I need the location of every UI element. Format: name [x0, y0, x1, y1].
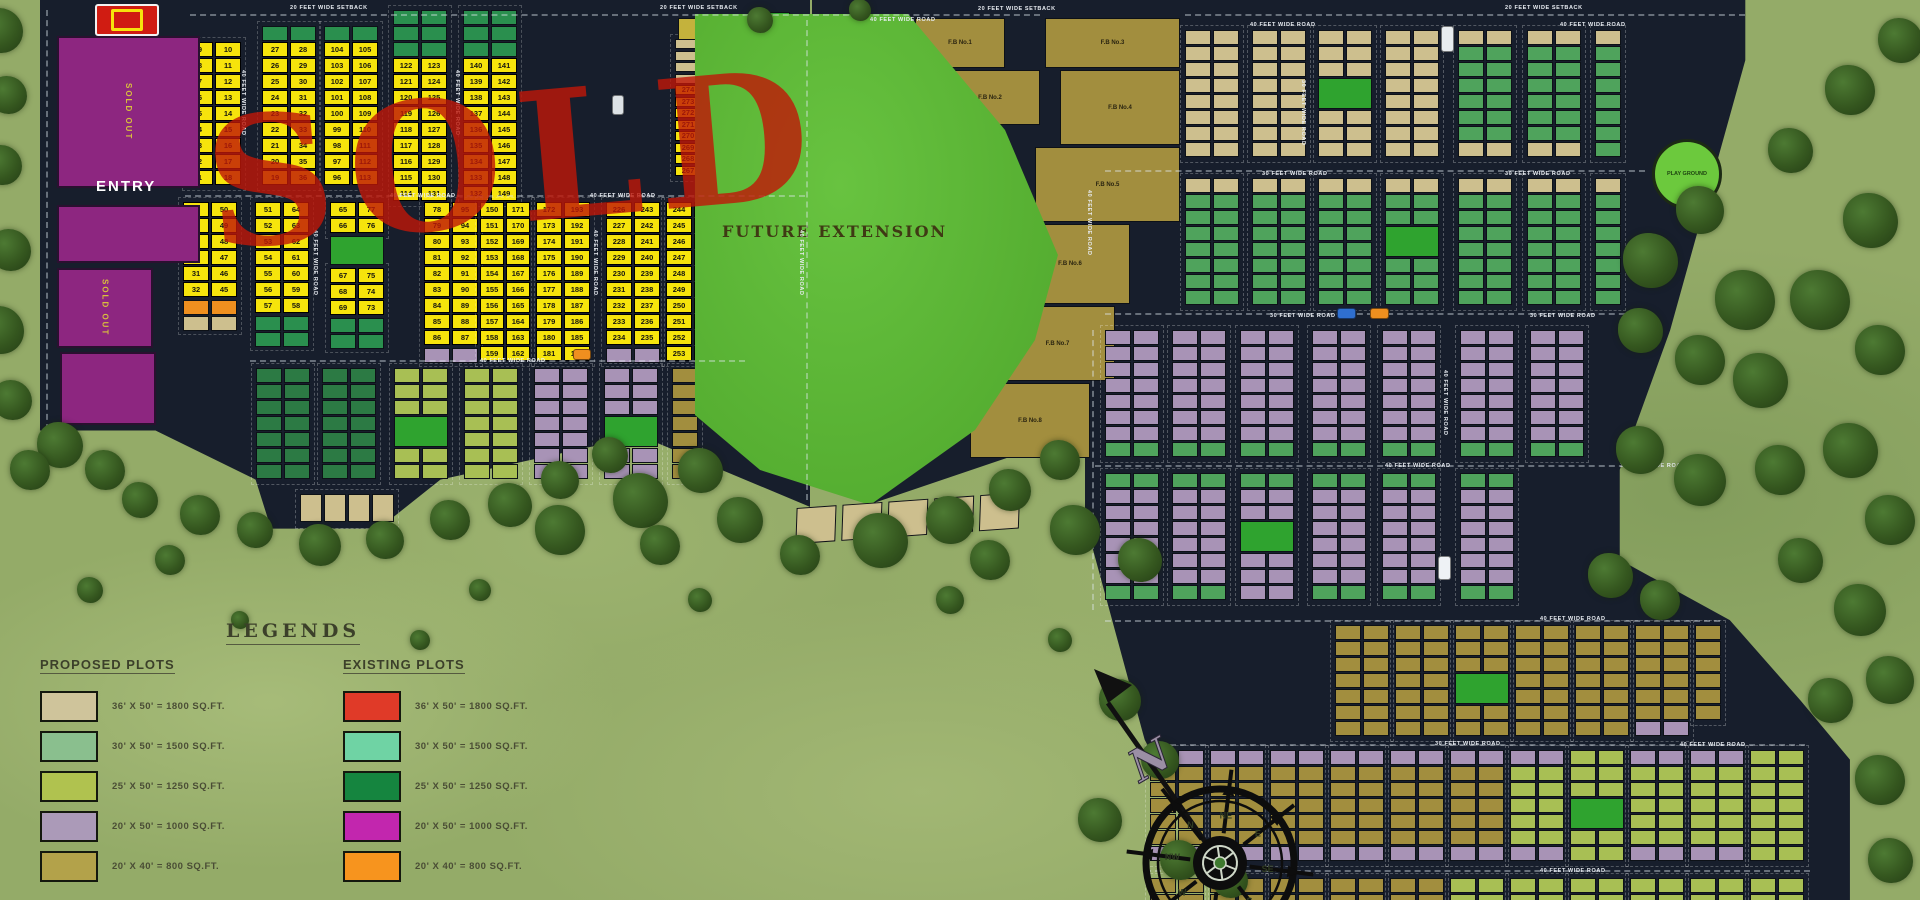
legend-proposed: PROPOSED PLOTS 36' X 50' = 1800 SQ.FT.30… [40, 656, 225, 886]
legend-size-label: 20' X 40' = 800 SQ.FT. [112, 861, 219, 872]
legend-swatch [343, 771, 401, 802]
road-label: 40 FEET WIDE ROAD [240, 70, 246, 136]
vehicle-icon [1337, 308, 1356, 319]
road-label: 40 FEET WIDE ROAD [1250, 22, 1316, 28]
legend-size-label: 36' X 50' = 1800 SQ.FT. [415, 701, 528, 712]
legend-title: LEGENDS [226, 620, 360, 645]
road-label: 30 FEET WIDE ROAD [1300, 80, 1306, 146]
vehicle-icon [1441, 26, 1454, 52]
compass-point-label: N [1187, 820, 1194, 830]
road-label: 20 FEET WIDE SETBACK [978, 6, 1056, 12]
legend-row: 25' X 50' = 1250 SQ.FT. [343, 766, 528, 806]
road-centerline [46, 10, 48, 430]
legend-swatch [343, 731, 401, 762]
legend-size-label: 20' X 50' = 1000 SQ.FT. [415, 821, 528, 832]
legend-row: 36' X 50' = 1800 SQ.FT. [40, 686, 225, 726]
compass-point-label: W [1178, 888, 1187, 898]
legend-row: 36' X 50' = 1800 SQ.FT. [343, 686, 528, 726]
road-label: 20 FEET WIDE SETBACK [1505, 5, 1583, 11]
vehicle-icon [1370, 308, 1389, 319]
road-label: 40 FEET WIDE ROAD [1442, 370, 1448, 436]
road-centerline [1095, 465, 1635, 467]
legend-existing: EXISTING PLOTS 36' X 50' = 1800 SQ.FT.30… [343, 656, 528, 886]
legend-size-label: 25' X 50' = 1250 SQ.FT. [415, 781, 528, 792]
site-plan-map: FUTURE EXTENSION ENTRY PLAY GROUND 91081… [0, 0, 1920, 900]
legend-size-label: 30' X 50' = 1500 SQ.FT. [112, 741, 225, 752]
compass-point-label: NE [1220, 810, 1233, 820]
road-label: 20 FEET WIDE SETBACK [290, 5, 368, 11]
vehicle-icon [1438, 556, 1451, 580]
legend-swatch [343, 851, 401, 882]
legend-swatch [40, 691, 98, 722]
legend-row: 20' X 50' = 1000 SQ.FT. [40, 806, 225, 846]
legend-row: 30' X 50' = 1500 SQ.FT. [40, 726, 225, 766]
road-centerline [190, 14, 1040, 16]
road-label: 40 FEET WIDE ROAD [798, 230, 804, 296]
vehicle-icon [573, 349, 591, 360]
compass-point-label: NW [1165, 852, 1180, 862]
road-label: 40 FEET WIDE ROAD [1086, 190, 1092, 256]
road-centerline [1105, 170, 1645, 172]
road-label: 40 FEET WIDE ROAD [592, 230, 598, 296]
road-label: 40 FEET WIDE ROAD [454, 70, 460, 136]
compass-point-label: S [1247, 896, 1253, 900]
legend-size-label: 30' X 50' = 1500 SQ.FT. [415, 741, 528, 752]
road-label: 40 FEET WIDE ROAD [870, 17, 936, 23]
legend-size-label: 20' X 50' = 1000 SQ.FT. [112, 821, 225, 832]
legend-swatch [343, 811, 401, 842]
legend-proposed-rows: 36' X 50' = 1800 SQ.FT.30' X 50' = 1500 … [40, 686, 225, 886]
legend-size-label: 20' X 40' = 800 SQ.FT. [415, 861, 522, 872]
road-centerline [1105, 620, 1720, 622]
legend-existing-rows: 36' X 50' = 1800 SQ.FT.30' X 50' = 1500 … [343, 686, 528, 886]
legend-row: 30' X 50' = 1500 SQ.FT. [343, 726, 528, 766]
legend-swatch [40, 811, 98, 842]
legend-row: 20' X 40' = 800 SQ.FT. [343, 846, 528, 886]
legend-swatch [40, 851, 98, 882]
compass-rose: N NNEESESSWWNW [1070, 655, 1380, 900]
legend-existing-title: EXISTING PLOTS [343, 657, 465, 674]
legend-swatch [343, 691, 401, 722]
play-ground: PLAY GROUND [1652, 139, 1722, 209]
legend-proposed-title: PROPOSED PLOTS [40, 657, 175, 674]
road-centerline [250, 360, 745, 362]
road-label: 40 FEET WIDE ROAD [312, 230, 318, 296]
road-centerline [1092, 330, 1094, 610]
compass-point-label: SE [1262, 864, 1274, 874]
legend-size-label: 36' X 50' = 1800 SQ.FT. [112, 701, 225, 712]
road-label: 40 FEET WIDE ROAD [1560, 22, 1626, 28]
legend-swatch [40, 771, 98, 802]
legend-swatch [40, 731, 98, 762]
road-label: 20 FEET WIDE SETBACK [660, 5, 738, 11]
legend-row: 25' X 50' = 1250 SQ.FT. [40, 766, 225, 806]
compass-point-label: E [1255, 828, 1261, 838]
north-letter: N [1118, 727, 1182, 793]
road-centerline [1185, 14, 1745, 16]
legend-row: 20' X 40' = 800 SQ.FT. [40, 846, 225, 886]
road-labels-layer: 20 FEET WIDE SETBACK20 FEET WIDE SETBACK… [0, 0, 1920, 900]
vehicle-icon [612, 95, 624, 115]
road-centerline [185, 195, 805, 197]
legend-row: 20' X 50' = 1000 SQ.FT. [343, 806, 528, 846]
legend-size-label: 25' X 50' = 1250 SQ.FT. [112, 781, 225, 792]
road-centerline [806, 20, 808, 500]
